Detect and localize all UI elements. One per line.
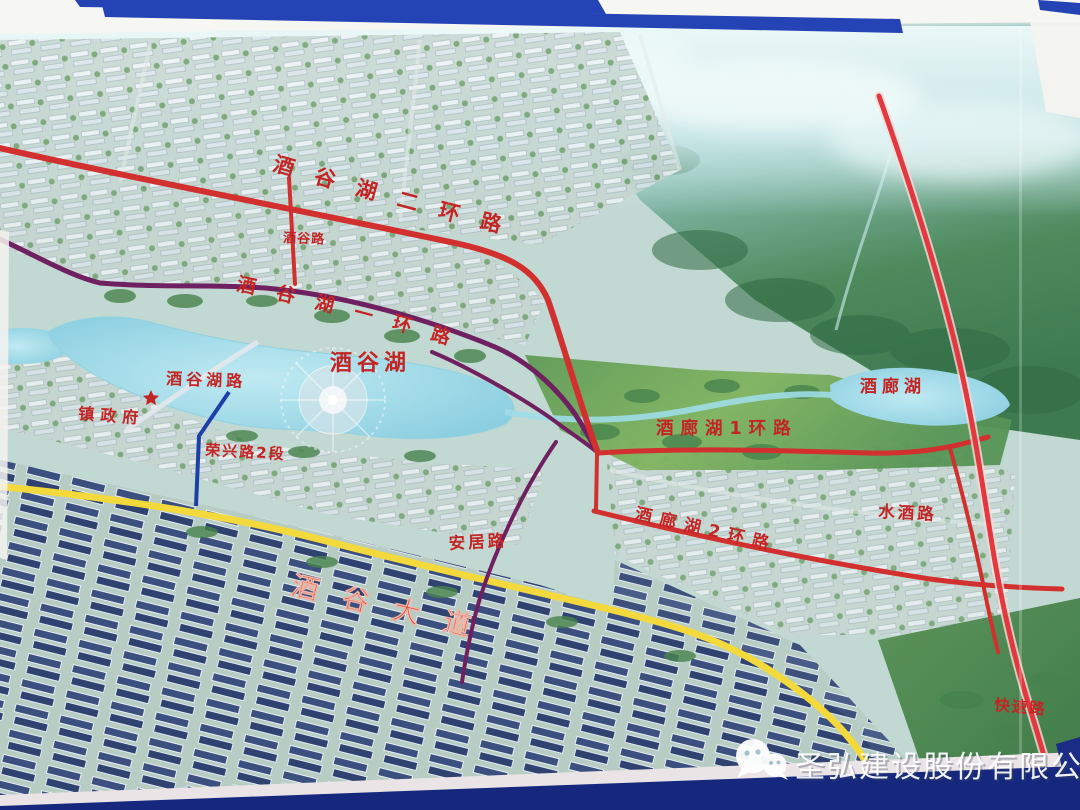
label-jiugu-lake-road: 酒谷湖路 (166, 369, 247, 391)
label-anju-road: 安居路 (448, 530, 507, 553)
master-plan-photo: 酒谷湖二环路 酒谷路 酒谷湖一环路 酒谷湖 酒谷湖路 镇政府 荣兴路2段 酒廊湖… (0, 0, 1080, 810)
label-jiulang-ring1: 酒廊湖1环路 (656, 418, 798, 439)
poster-crease (1019, 26, 1022, 786)
label-jiugu-road: 酒谷路 (283, 230, 326, 247)
label-shuijiu-road: 水酒路 (878, 501, 937, 524)
master-plan-map: 酒谷湖二环路 酒谷路 酒谷湖一环路 酒谷湖 酒谷湖路 镇政府 荣兴路2段 酒廊湖… (0, 0, 1080, 810)
watermark-company: 圣弘建设股份有限公司 (795, 750, 1080, 785)
label-jiulang-lake: 酒廊湖 (860, 376, 926, 397)
label-jiugu-lake: 酒谷湖 (330, 351, 411, 376)
